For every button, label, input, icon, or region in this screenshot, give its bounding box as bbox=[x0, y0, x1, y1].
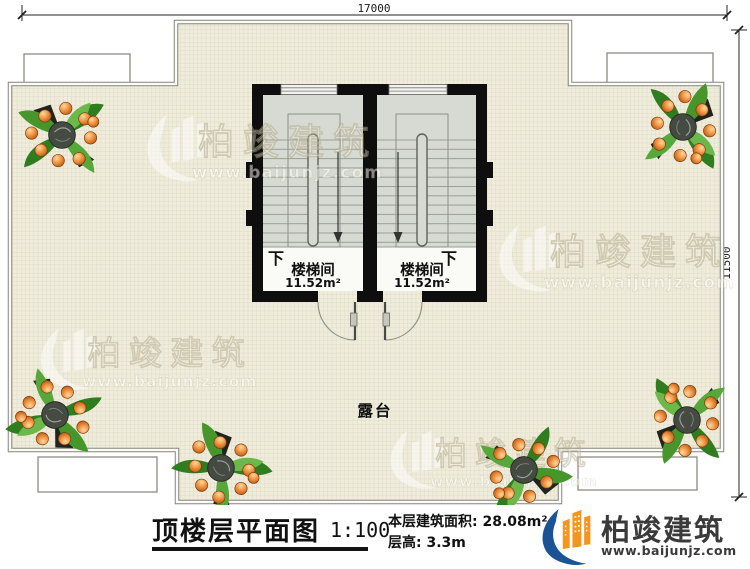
potted-plant-icon bbox=[645, 83, 716, 169]
watermark-brand: 柏竣建筑 bbox=[198, 122, 378, 163]
potted-plant-icon bbox=[18, 102, 104, 173]
floor-area-label: 本层建筑面积: bbox=[388, 514, 478, 530]
stairwell-area-right: 11.52m² bbox=[387, 276, 457, 290]
stair-window-left bbox=[281, 85, 337, 95]
watermark-url: www.baijunjz.com bbox=[544, 273, 735, 292]
door-handle-icon bbox=[351, 313, 358, 326]
dimension-right bbox=[731, 26, 747, 501]
watermark-brand: 柏竣建筑 bbox=[88, 333, 254, 372]
roof-outline-bottom-left bbox=[38, 457, 157, 492]
brand-url: www.baijunjz.com bbox=[601, 543, 737, 558]
stair-window-right bbox=[389, 85, 447, 95]
floor-height-line: 层高: 3.3m bbox=[388, 532, 466, 552]
floor-area-line: 本层建筑面积: 28.08m² bbox=[388, 511, 548, 531]
floorplan-drawing: 17000 11500 bbox=[0, 0, 750, 569]
watermark-url: www.baijunjz.com bbox=[82, 373, 258, 391]
stair-railing-right bbox=[417, 134, 427, 246]
door-handle-icon bbox=[383, 313, 390, 326]
roof-outline-top-left bbox=[24, 54, 130, 84]
floor-height-label: 层高: bbox=[388, 535, 422, 551]
watermark-url: www.baijunjz.com bbox=[192, 163, 383, 182]
roof-outline-top-right bbox=[607, 53, 713, 84]
floorplan-canvas: 17000 11500 bbox=[0, 0, 750, 569]
title-underline bbox=[152, 547, 368, 551]
drawing-scale: 1:100 bbox=[330, 518, 390, 542]
watermark-brand: 柏竣建筑 bbox=[550, 232, 730, 273]
brand-logo-icon bbox=[538, 505, 600, 567]
dimension-top-value: 17000 bbox=[357, 2, 390, 15]
title-block: 顶楼层平面图 1:100 本层建筑面积: 28.08m² 层高: 3.3m 柏竣… bbox=[0, 505, 750, 569]
floor-height-value: 3.3m bbox=[426, 535, 465, 551]
drawing-title: 顶楼层平面图 bbox=[152, 511, 320, 548]
potted-plant-icon bbox=[654, 378, 725, 464]
terrace-label: 露台 bbox=[340, 399, 410, 421]
stairwell-area-left: 11.52m² bbox=[278, 276, 348, 290]
